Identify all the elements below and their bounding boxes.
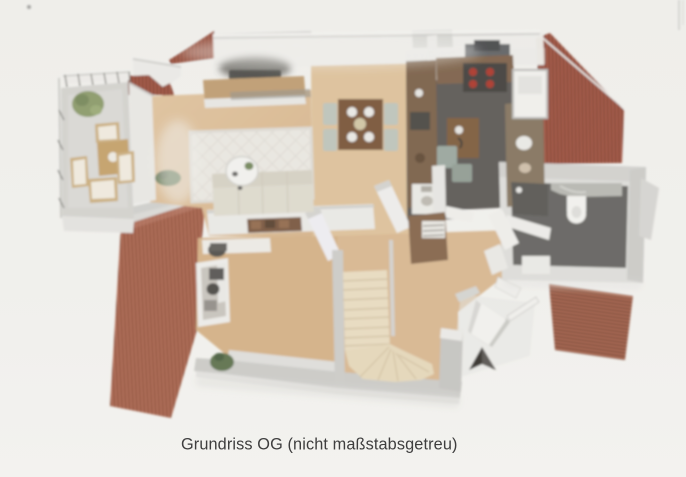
svg-text:Grundriss OG (nicht maßstabsge: Grundriss OG (nicht maßstabsgetreu) — [181, 436, 458, 454]
